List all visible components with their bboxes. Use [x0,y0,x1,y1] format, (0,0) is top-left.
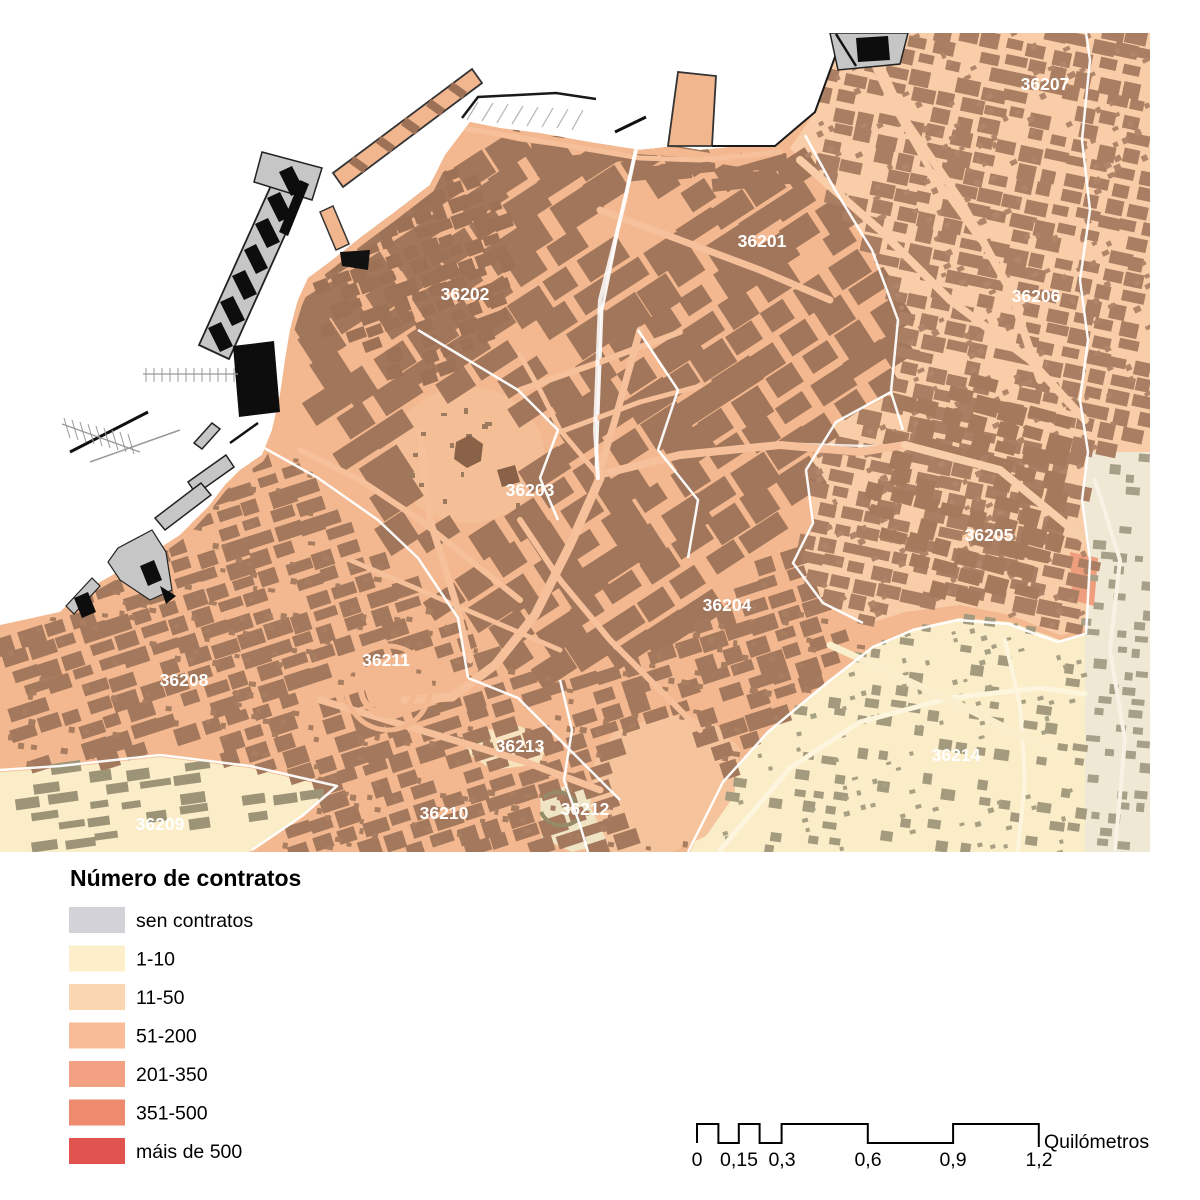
svg-text:351-500: 351-500 [136,1103,208,1125]
svg-text:sen contratos: sen contratos [136,910,253,932]
svg-text:0,3: 0,3 [768,1149,795,1171]
svg-text:36213: 36213 [496,736,545,756]
svg-text:11-50: 11-50 [136,987,185,1009]
svg-text:0,9: 0,9 [939,1149,966,1171]
svg-text:36209: 36209 [136,814,185,834]
svg-text:36214: 36214 [932,745,981,765]
svg-text:0,6: 0,6 [854,1149,881,1171]
svg-text:1-10: 1-10 [136,949,175,971]
svg-text:36202: 36202 [441,284,490,304]
svg-text:36211: 36211 [362,650,410,670]
svg-text:0: 0 [692,1149,703,1171]
svg-text:Número de contratos: Número de contratos [70,865,301,891]
svg-text:36206: 36206 [1012,286,1061,306]
svg-text:36212: 36212 [561,799,610,819]
svg-text:36207: 36207 [1021,74,1070,94]
svg-text:201-350: 201-350 [136,1064,208,1086]
svg-text:máis de 500: máis de 500 [136,1141,242,1163]
svg-text:36208: 36208 [160,670,209,690]
svg-text:Quilómetros: Quilómetros [1044,1131,1149,1153]
svg-text:51-200: 51-200 [136,1026,197,1048]
svg-text:36205: 36205 [965,525,1014,545]
svg-text:36210: 36210 [420,803,469,823]
svg-text:36201: 36201 [738,231,787,251]
svg-text:36204: 36204 [703,595,752,615]
svg-text:36203: 36203 [506,480,555,500]
svg-text:0,15: 0,15 [720,1149,758,1171]
